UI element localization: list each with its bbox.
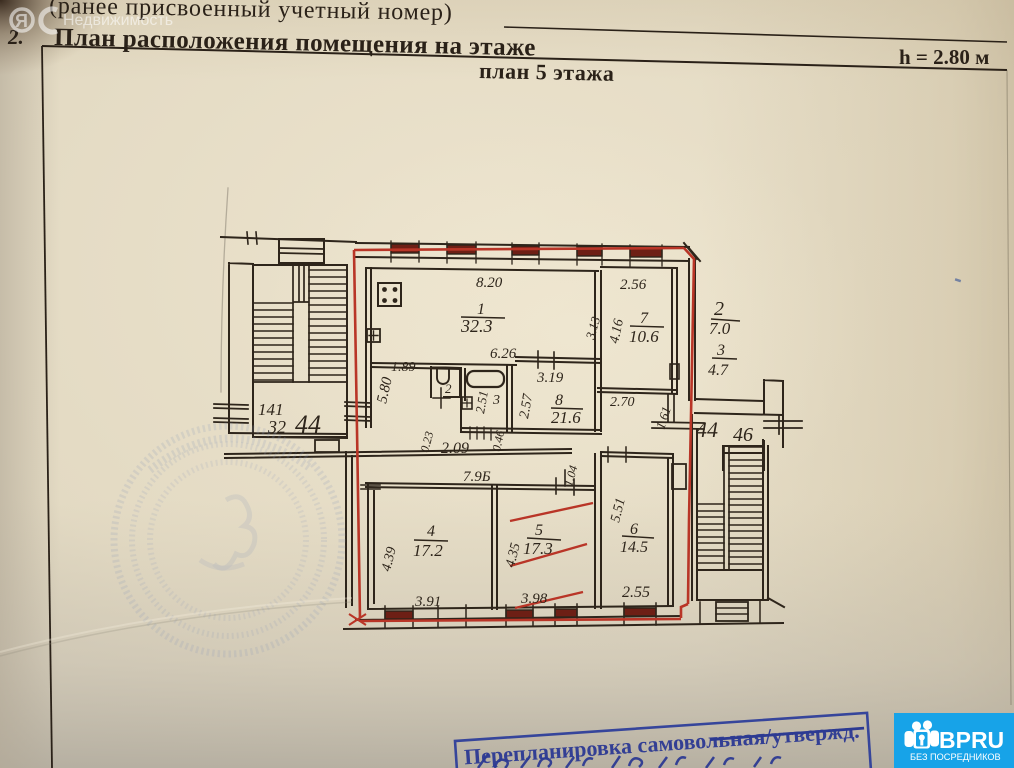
svg-text:Недвижимость: Недвижимость: [63, 12, 173, 29]
svg-text:7.0: 7.0: [709, 319, 731, 338]
svg-text:8.20: 8.20: [476, 275, 503, 291]
svg-text:BPRU: BPRU: [939, 727, 1004, 753]
svg-text:7: 7: [640, 310, 649, 327]
svg-text:3.98: 3.98: [520, 591, 548, 607]
svg-text:3.91: 3.91: [414, 594, 441, 610]
svg-text:2.70: 2.70: [610, 395, 635, 410]
svg-text:17.3: 17.3: [523, 539, 553, 558]
svg-text:44: 44: [696, 417, 718, 442]
svg-text:2: 2: [445, 381, 452, 396]
svg-text:32.3: 32.3: [460, 316, 493, 336]
svg-text:7.9Б: 7.9Б: [463, 469, 491, 485]
svg-text:5: 5: [535, 522, 543, 539]
svg-text:6: 6: [630, 521, 638, 538]
svg-text:2.55: 2.55: [622, 584, 650, 601]
svg-text:БЕЗ ПОСРЕДНИКОВ: БЕЗ ПОСРЕДНИКОВ: [910, 752, 1001, 762]
svg-text:4.7: 4.7: [708, 362, 729, 379]
svg-text:14.5: 14.5: [620, 539, 648, 556]
svg-text:46: 46: [733, 424, 753, 446]
svg-text:3: 3: [492, 393, 500, 408]
svg-text:2: 2: [714, 298, 724, 320]
svg-text:h = 2.80 м: h = 2.80 м: [899, 45, 989, 69]
svg-text:2.09: 2.09: [441, 440, 469, 457]
svg-text:4: 4: [427, 523, 435, 540]
svg-text:3: 3: [716, 342, 725, 359]
svg-text:21.6: 21.6: [551, 408, 581, 427]
svg-text:44: 44: [295, 410, 321, 439]
svg-text:3.19: 3.19: [536, 370, 564, 386]
svg-text:1.89: 1.89: [391, 360, 416, 375]
svg-text:8: 8: [555, 392, 563, 409]
svg-text:Я: Я: [15, 11, 28, 31]
svg-text:10.6: 10.6: [629, 327, 659, 346]
svg-text:2.56: 2.56: [620, 277, 647, 293]
svg-text:6.26: 6.26: [490, 346, 517, 362]
svg-text:план 5 этажа: план 5 этажа: [479, 58, 615, 86]
svg-text:17.2: 17.2: [413, 541, 443, 560]
